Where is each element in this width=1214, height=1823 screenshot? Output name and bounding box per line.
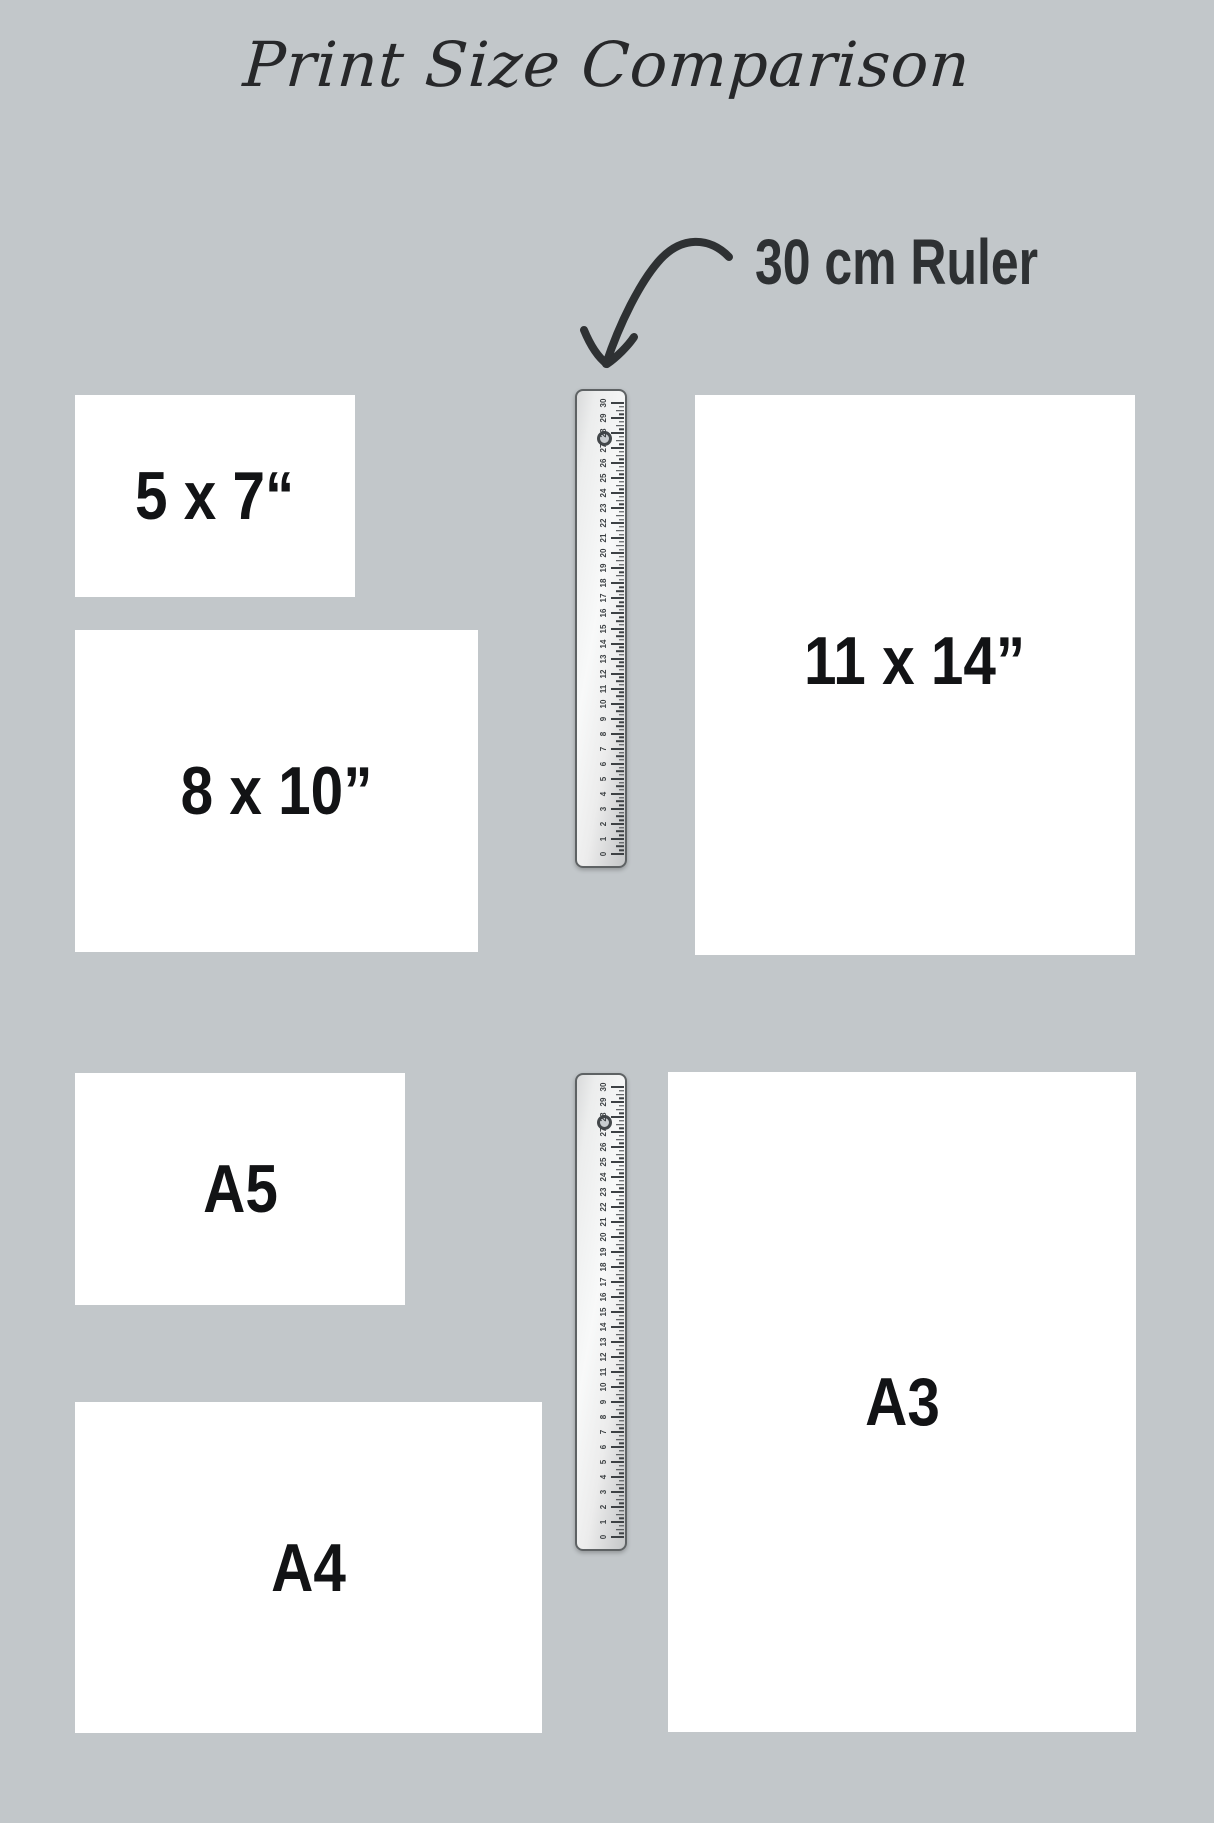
ruler-tick [619,1398,625,1399]
ruler-tick [619,835,625,836]
ruler-tick [619,1495,625,1496]
ruler-cm-number: 16 [596,605,612,621]
ruler-tick [616,1364,625,1366]
ruler-tick [619,414,625,415]
ruler-tick [616,1199,625,1201]
ruler-cm-number: 15 [596,621,612,637]
ruler-tick [611,1191,624,1193]
page-title: Print Size Comparison [0,28,1214,101]
ruler-tick [611,853,624,855]
ruler-tick [611,748,624,750]
ruler-tick [611,1386,624,1388]
ruler-tick [619,451,625,452]
ruler-tick [619,707,625,708]
ruler-tick [616,695,625,697]
ruler-cm-number: 8 [596,1409,612,1425]
ruler-cm-number: 2 [596,816,612,832]
curved-arrow-icon [560,205,770,385]
ruler-30cm-top: 0123456789101112131415161718192021222324… [575,389,627,868]
ruler-cm-number: 15 [596,1304,612,1320]
ruler-tick [619,1375,625,1376]
ruler-tick [619,1158,625,1159]
ruler-cm-number: 16 [596,1289,612,1305]
ruler-cm-number: 22 [596,515,612,531]
ruler-tick [619,1120,625,1121]
ruler-cm-number: 12 [596,666,612,682]
ruler-cm-number: 5 [596,1454,612,1470]
print-size-11x14-panel: 11 x 14” [695,395,1135,955]
ruler-tick [611,688,624,690]
ruler-cm-number: 6 [596,1439,612,1455]
ruler-tick [611,582,624,584]
ruler-tick [616,846,625,848]
ruler-tick [616,1499,625,1501]
ruler-cm-number: 28 [596,1109,612,1125]
ruler-cm-number: 1 [596,1514,612,1530]
ruler-tick [619,1293,625,1294]
ruler-tick [616,1469,625,1471]
ruler-tick [619,1533,625,1534]
ruler-30cm-bottom: 0123456789101112131415161718192021222324… [575,1073,627,1551]
ruler-tick [611,1266,624,1268]
ruler-tick [619,722,625,723]
ruler-tick [611,1236,624,1238]
ruler-tick [616,1154,625,1156]
ruler-tick [616,410,625,412]
ruler-tick [619,1390,625,1391]
ruler-tick [611,1506,624,1508]
ruler-tick [611,522,624,524]
ruler-tick [616,1304,625,1306]
ruler-tick [616,1289,625,1291]
ruler-callout-label: 30 cm Ruler [755,231,1118,293]
ruler-tick [619,624,625,625]
ruler-tick [619,436,625,437]
ruler-tick [619,474,625,475]
ruler-tick [619,1443,625,1444]
ruler-tick [619,819,625,820]
ruler-tick [616,470,625,472]
ruler-tick [611,1461,624,1463]
ruler-tick [619,1128,625,1129]
print-size-comparison-poster: Print Size Comparison 30 cm Ruler 5 x 7“… [0,0,1214,1823]
ruler-tick [619,1360,625,1361]
ruler-tick [619,1353,625,1354]
ruler-tick [616,560,625,562]
ruler-tick [619,1143,625,1144]
ruler-tick [616,786,625,788]
ruler-tick [611,1356,624,1358]
ruler-tick [619,1368,625,1369]
ruler-tick [616,1454,625,1456]
ruler-tick [616,1424,625,1426]
print-size-a5-panel: A5 [75,1073,405,1305]
ruler-tick [611,823,624,825]
ruler-tick [619,1255,625,1256]
ruler-tick [619,647,625,648]
ruler-tick [619,1503,625,1504]
ruler-tick [619,1270,625,1271]
ruler-tick [611,507,624,509]
ruler-cm-number: 0 [596,1529,612,1545]
ruler-tick [611,1146,624,1148]
ruler-tick [619,1435,625,1436]
ruler-cm-number: 30 [596,1079,612,1095]
ruler-tick [616,440,625,442]
ruler-tick [619,1195,625,1196]
ruler-tick [619,519,625,520]
ruler-tick [619,601,625,602]
ruler-tick [616,575,625,577]
ruler-cm-number: 17 [596,590,612,606]
ruler-tick [611,703,624,705]
ruler-tick [616,1214,625,1216]
print-size-5x7-panel: 5 x 7“ [75,395,355,597]
print-size-a5-label: A5 [203,1150,278,1228]
ruler-tick [619,729,625,730]
ruler-cm-number: 6 [596,756,612,772]
ruler-tick [619,1420,625,1421]
ruler-tick [611,718,624,720]
ruler-tick [619,797,625,798]
print-size-8x10-panel: 8 x 10” [75,630,478,952]
ruler-tick [611,612,624,614]
ruler-tick [619,1338,625,1339]
ruler-tick [616,1379,625,1381]
ruler-tick [611,417,624,419]
ruler-tick [619,1465,625,1466]
ruler-tick [611,808,624,810]
ruler-tick [619,1428,625,1429]
ruler-tick [619,1285,625,1286]
ruler-tick [619,1473,625,1474]
ruler-tick [619,466,625,467]
ruler-tick [619,504,625,505]
ruler-tick [619,1323,625,1324]
ruler-tick [616,1394,625,1396]
ruler-tick [616,500,625,502]
ruler-tick [611,552,624,554]
ruler-tick [611,477,624,479]
ruler-tick [616,801,625,803]
ruler-tick [619,1405,625,1406]
ruler-cm-number: 7 [596,741,612,757]
ruler-tick [619,692,625,693]
ruler-tick [616,620,625,622]
ruler-tick [619,429,625,430]
ruler-cm-number: 1 [596,831,612,847]
ruler-tick [616,710,625,712]
ruler-tick [611,1296,624,1298]
ruler-tick [619,1098,625,1099]
ruler-cm-number: 29 [596,410,612,426]
ruler-cm-number: 21 [596,1214,612,1230]
ruler-tick [611,1341,624,1343]
ruler-tick [619,534,625,535]
ruler-tick [611,673,624,675]
ruler-cm-number: 27 [596,1124,612,1140]
ruler-cm-number: 24 [596,1169,612,1185]
ruler-cm-number: 2 [596,1499,612,1515]
ruler-tick [611,1446,624,1448]
ruler-cm-number: 13 [596,1334,612,1350]
ruler-cm-number: 25 [596,1154,612,1170]
ruler-cm-number: 11 [596,681,612,697]
ruler-cm-number: 14 [596,636,612,652]
ruler-tick [619,511,625,512]
ruler-tick [616,1334,625,1336]
ruler-cm-number: 8 [596,726,612,742]
ruler-tick [619,632,625,633]
ruler-tick [616,545,625,547]
ruler-tick [619,1383,625,1384]
ruler-tick [616,831,625,833]
ruler-tick [619,549,625,550]
ruler-tick [611,658,624,660]
ruler-cm-number: 27 [596,440,612,456]
ruler-tick [616,755,625,757]
ruler-tick [611,432,624,434]
ruler-tick [611,1281,624,1283]
ruler-tick [616,1139,625,1141]
print-size-5x7-label: 5 x 7“ [135,457,294,535]
ruler-tick [611,447,624,449]
print-size-11x14-label: 11 x 14” [804,622,1025,700]
ruler-tick [619,1240,625,1241]
ruler-cm-number: 9 [596,1394,612,1410]
ruler-tick [619,556,625,557]
ruler-cm-number: 23 [596,500,612,516]
ruler-tick [619,1480,625,1481]
print-size-a3-label: A3 [865,1363,940,1441]
ruler-tick [619,496,625,497]
ruler-tick [619,804,625,805]
ruler-tick [616,605,625,607]
ruler-tick [619,677,625,678]
ruler-tick [611,1101,624,1103]
ruler-tick [619,662,625,663]
ruler-tick [611,1176,624,1178]
ruler-tick [616,1349,625,1351]
ruler-tick [619,594,625,595]
ruler-tick [619,564,625,565]
ruler-tick [619,1210,625,1211]
ruler-tick [619,714,625,715]
ruler-cm-number: 12 [596,1349,612,1365]
ruler-tick [619,1105,625,1106]
ruler-tick [619,1165,625,1166]
ruler-tick [619,654,625,655]
ruler-tick [611,838,624,840]
ruler-tick [619,1300,625,1301]
ruler-tick [619,459,625,460]
ruler-tick [619,684,625,685]
ruler-tick [619,744,625,745]
ruler-tick [619,571,625,572]
ruler-tick [611,492,624,494]
ruler-tick [611,1131,624,1133]
ruler-tick [619,617,625,618]
ruler-cm-number: 18 [596,575,612,591]
ruler-tick [616,1244,625,1246]
ruler-tick [616,1124,625,1126]
ruler-cm-number: 26 [596,1139,612,1155]
ruler-tick [619,541,625,542]
ruler-tick [611,462,624,464]
ruler-tick [611,1311,624,1313]
ruler-tick [619,782,625,783]
ruler-tick [619,1278,625,1279]
ruler-cm-number: 11 [596,1364,612,1380]
ruler-tick [619,1090,625,1091]
ruler-tick [619,1450,625,1451]
ruler-tick [619,406,625,407]
ruler-tick [619,827,625,828]
ruler-tick [619,639,625,640]
ruler-tick [616,425,625,427]
ruler-tick [619,789,625,790]
ruler-tick [619,526,625,527]
ruler-tick [616,1409,625,1411]
ruler-tick [611,1161,624,1163]
ruler-tick [619,774,625,775]
ruler-tick [611,1251,624,1253]
ruler-tick [611,733,624,735]
ruler-tick [616,665,625,667]
ruler-tick [616,590,625,592]
ruler-tick [611,1206,624,1208]
ruler-tick [616,1094,625,1096]
ruler-tick [619,481,625,482]
ruler-tick [619,1113,625,1114]
ruler-tick [619,1218,625,1219]
ruler-tick [616,1259,625,1261]
ruler-cm-number: 25 [596,470,612,486]
ruler-tick [616,485,625,487]
ruler-cm-number: 29 [596,1094,612,1110]
ruler-tick [616,740,625,742]
ruler-tick [619,1180,625,1181]
ruler-tick [611,1476,624,1478]
ruler-tick [616,1169,625,1171]
ruler-tick [619,489,625,490]
ruler-tick [616,1274,625,1276]
ruler-cm-number: 3 [596,1484,612,1500]
ruler-cm-number: 13 [596,651,612,667]
ruler-cm-number: 4 [596,1469,612,1485]
ruler-tick [619,1173,625,1174]
ruler-cm-number: 17 [596,1274,612,1290]
ruler-tick [616,650,625,652]
ruler-tick [619,579,625,580]
ruler-tick [611,597,624,599]
ruler-tick [619,1458,625,1459]
ruler-tick [619,1233,625,1234]
ruler-cm-number: 5 [596,771,612,787]
ruler-cm-number: 30 [596,395,612,411]
ruler-tick [616,530,625,532]
ruler-tick [616,1529,625,1531]
ruler-cm-number: 3 [596,801,612,817]
ruler-tick [619,609,625,610]
ruler-tick [619,1203,625,1204]
ruler-tick [611,567,624,569]
ruler-cm-number: 21 [596,530,612,546]
ruler-tick [619,444,625,445]
ruler-tick [611,1116,624,1118]
ruler-tick [619,421,625,422]
ruler-callout-text: 30 cm Ruler [755,225,1038,299]
ruler-tick [611,778,624,780]
ruler-tick [619,1248,625,1249]
ruler-tick [616,635,625,637]
ruler-tick [619,1263,625,1264]
ruler-cm-number: 7 [596,1424,612,1440]
ruler-tick [616,1514,625,1516]
ruler-cm-number: 19 [596,1244,612,1260]
ruler-tick [611,1431,624,1433]
print-size-a3-panel: A3 [668,1072,1136,1732]
ruler-tick [619,812,625,813]
ruler-tick [619,1525,625,1526]
ruler-tick [619,586,625,587]
ruler-tick [619,1315,625,1316]
ruler-tick [619,1413,625,1414]
ruler-tick [611,793,624,795]
print-size-a4-panel: A4 [75,1402,542,1733]
ruler-tick [611,537,624,539]
print-size-a4-label: A4 [271,1529,346,1607]
ruler-cm-number: 9 [596,711,612,727]
ruler-tick [611,1371,624,1373]
ruler-tick [611,763,624,765]
ruler-cm-number: 22 [596,1199,612,1215]
ruler-tick [616,725,625,727]
ruler-tick [611,402,624,404]
ruler-tick [611,1491,624,1493]
ruler-tick [611,1416,624,1418]
ruler-tick [619,850,625,851]
ruler-cm-number: 19 [596,560,612,576]
ruler-tick [619,1150,625,1151]
ruler-tick [611,1326,624,1328]
ruler-tick [611,1401,624,1403]
ruler-tick [619,1518,625,1519]
ruler-tick [619,759,625,760]
ruler-tick [611,1521,624,1523]
ruler-tick [616,816,625,818]
ruler-tick [616,1109,625,1111]
ruler-tick [619,669,625,670]
ruler-cm-number: 24 [596,485,612,501]
ruler-tick [619,1345,625,1346]
ruler-tick [616,1484,625,1486]
ruler-tick [616,455,625,457]
ruler-tick [619,767,625,768]
ruler-tick [619,1510,625,1511]
ruler-tick [619,1135,625,1136]
ruler-cm-number: 18 [596,1259,612,1275]
ruler-tick [611,1221,624,1223]
ruler-cm-number: 4 [596,786,612,802]
ruler-cm-number: 28 [596,425,612,441]
ruler-tick [611,1086,624,1088]
ruler-tick [616,1229,625,1231]
ruler-cm-number: 10 [596,1379,612,1395]
ruler-tick [611,1536,624,1538]
print-size-8x10-label: 8 x 10” [181,752,373,830]
ruler-cm-number: 10 [596,696,612,712]
